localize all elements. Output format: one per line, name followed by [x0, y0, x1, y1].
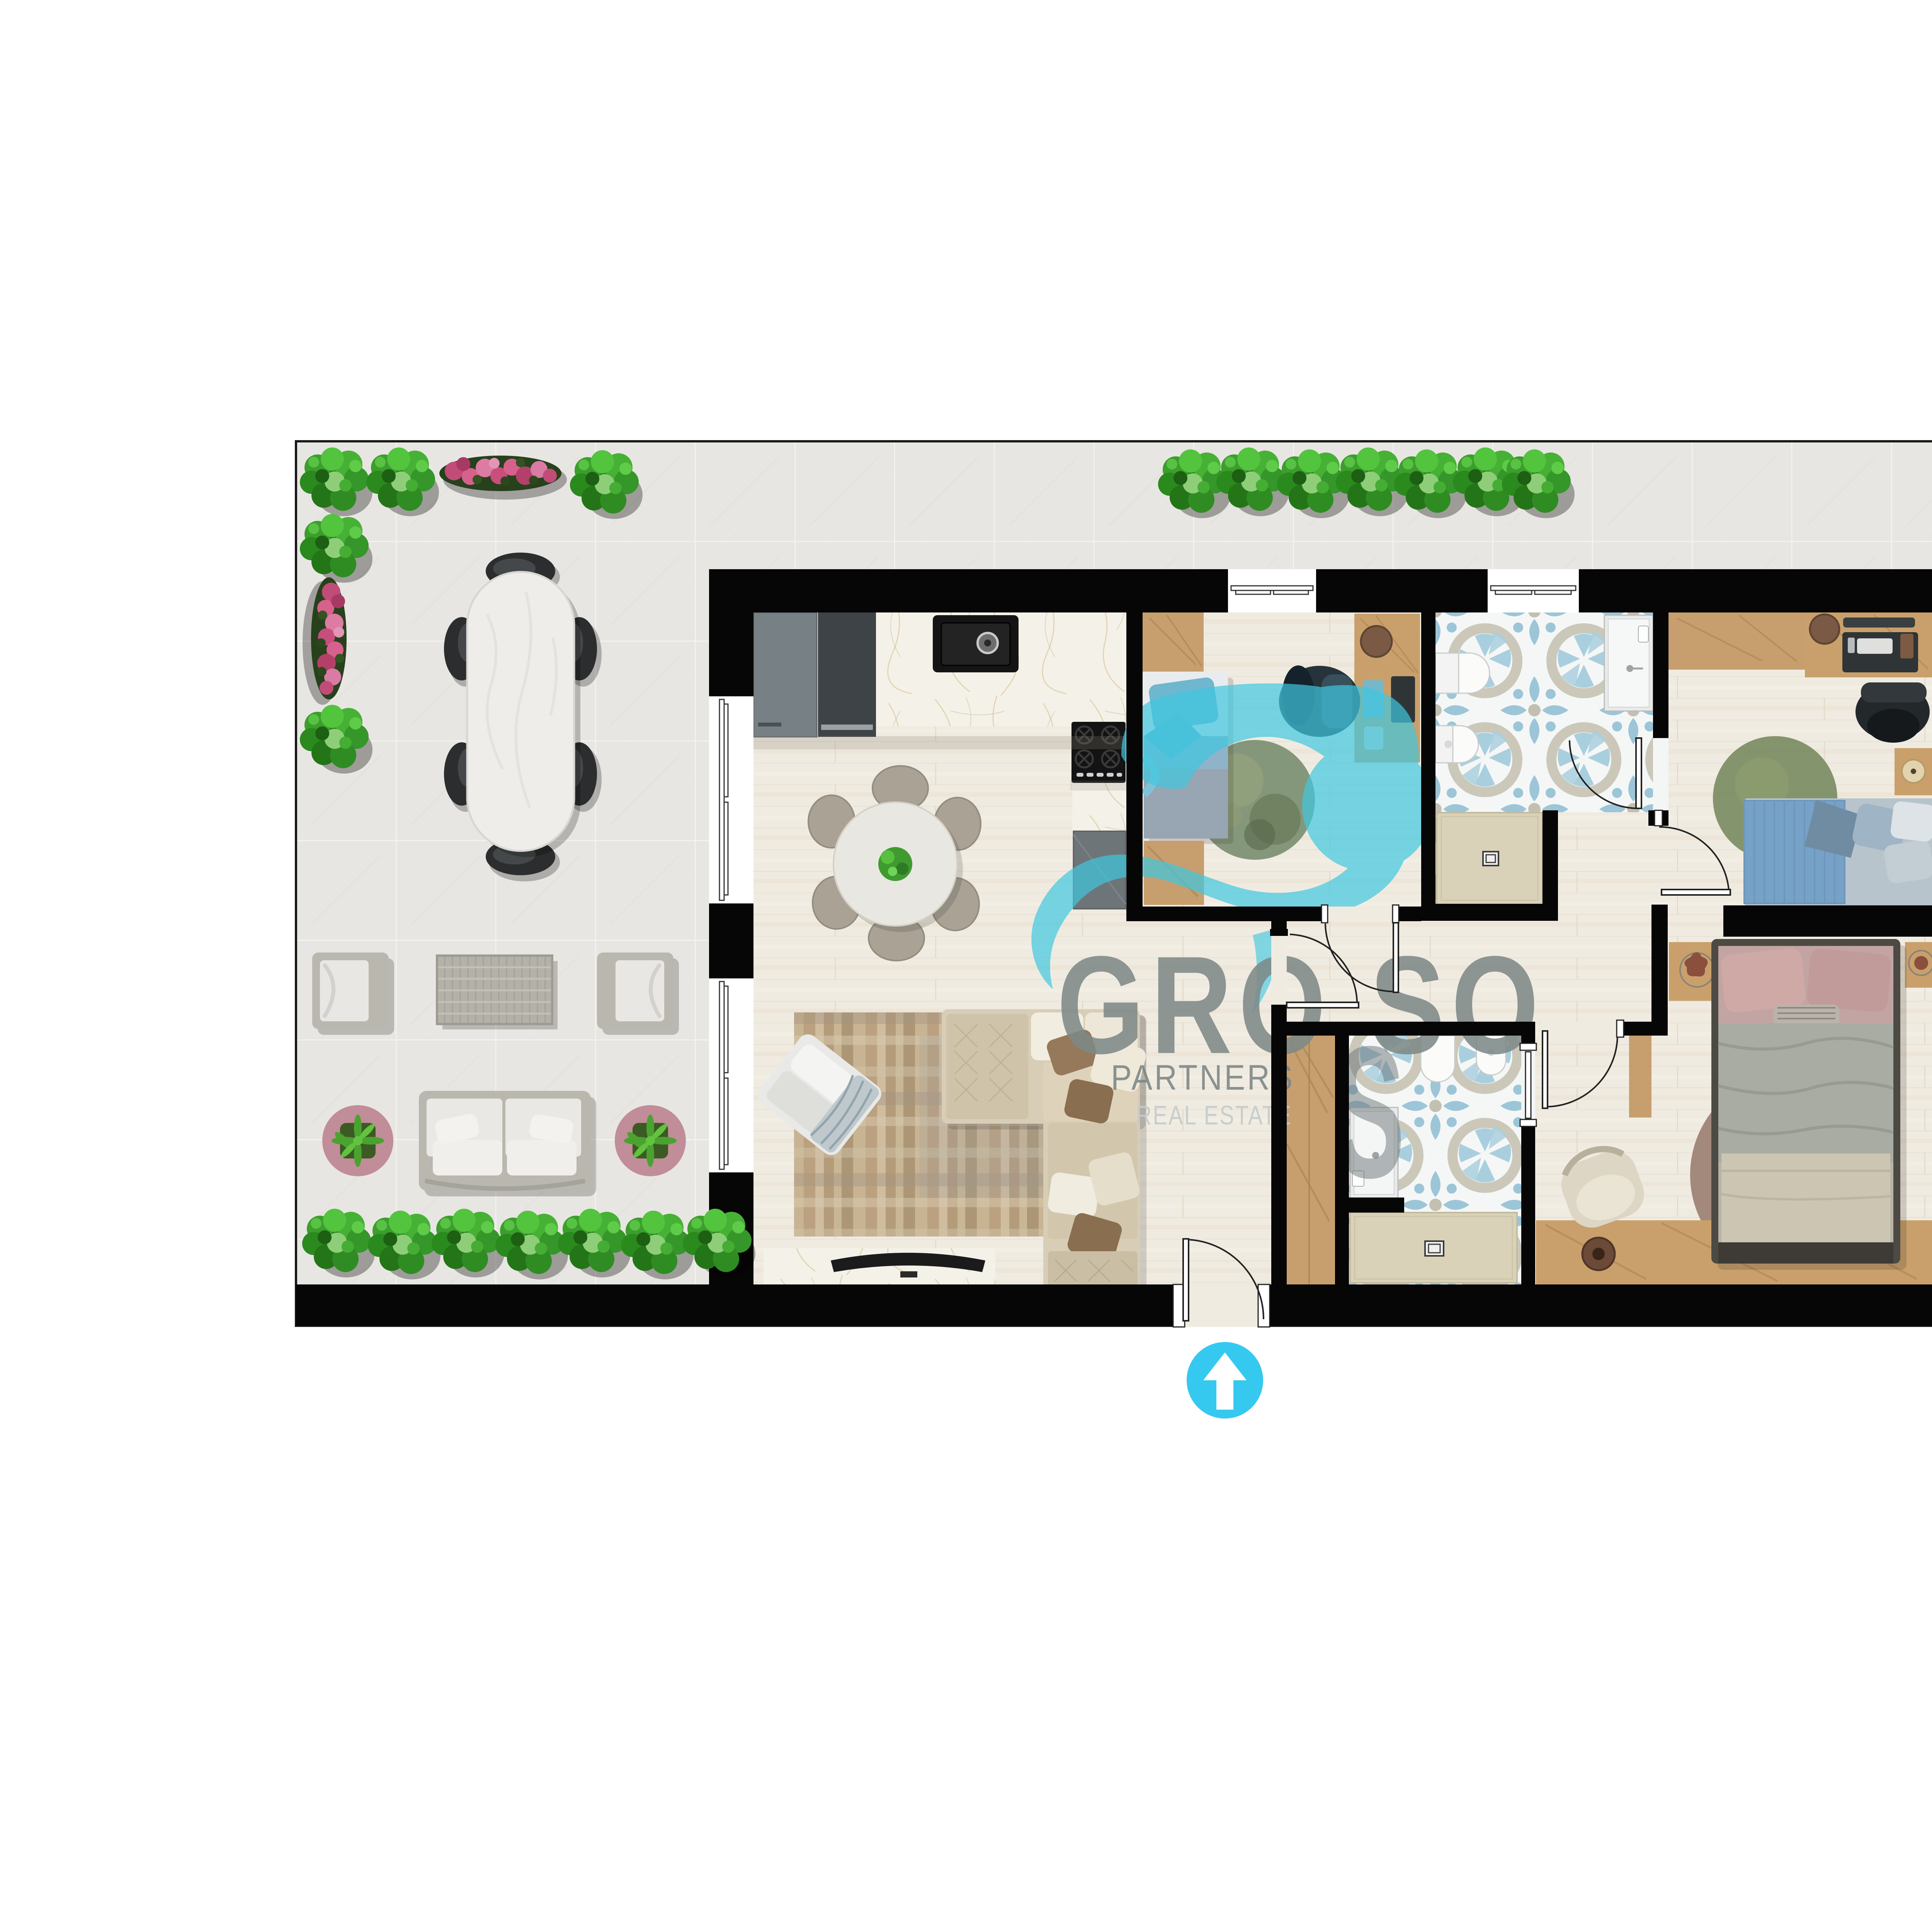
svg-text:REAL ESTATE: REAL ESTATE	[1136, 1101, 1292, 1130]
svg-text:PARTNERS: PARTNERS	[1111, 1058, 1295, 1097]
